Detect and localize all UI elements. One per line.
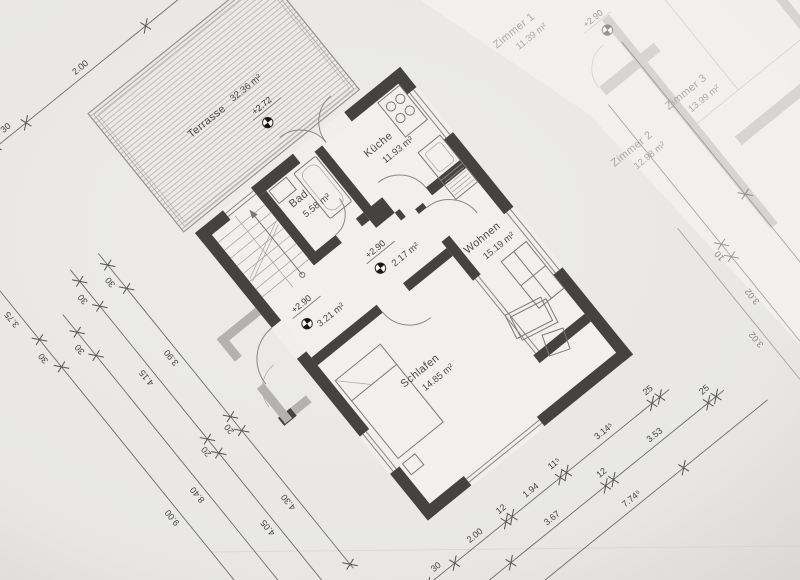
floor-plan-photo: Zimmer 1 11.39 m² +2.90 Zimmer 2 12.98 m… [0, 0, 800, 580]
floor-plan-svg: Zimmer 1 11.39 m² +2.90 Zimmer 2 12.98 m… [0, 0, 800, 580]
